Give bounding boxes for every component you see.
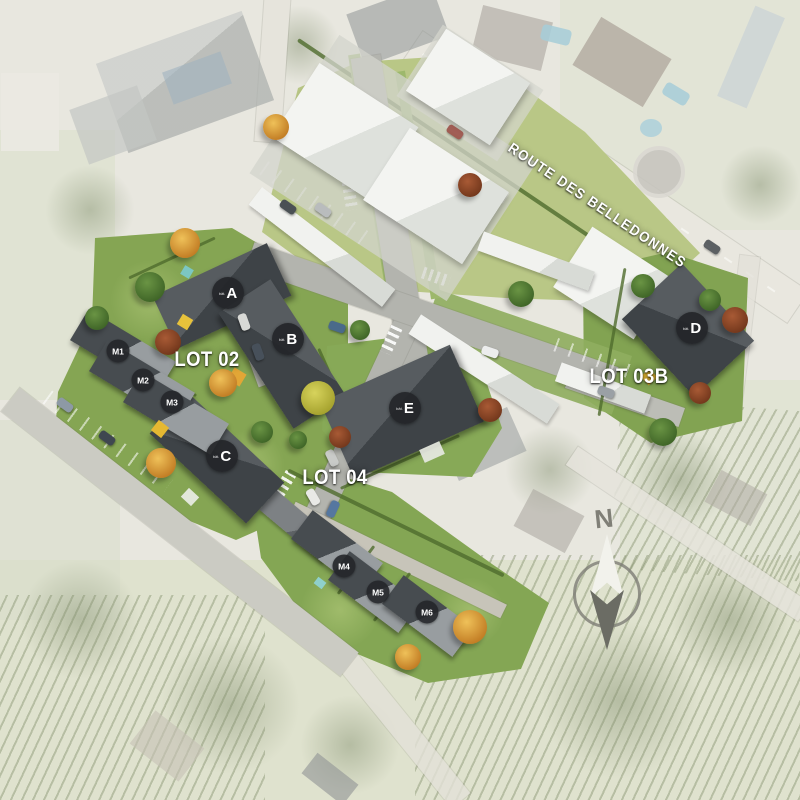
tree bbox=[209, 369, 237, 397]
tree bbox=[85, 306, 109, 330]
tree bbox=[649, 418, 677, 446]
tree bbox=[631, 274, 655, 298]
tree bbox=[699, 289, 721, 311]
tree bbox=[350, 320, 370, 340]
tree bbox=[146, 448, 176, 478]
building-prefix: bât. bbox=[213, 454, 220, 459]
building-prefix: bât. bbox=[396, 406, 403, 411]
building-marker-e: bât. E bbox=[389, 392, 421, 424]
building-marker-d: bât. D bbox=[676, 312, 708, 344]
tree bbox=[453, 610, 487, 644]
north-label: N bbox=[593, 503, 615, 536]
tree-clump bbox=[20, 560, 140, 680]
site-plan-map: ROUTE DES BELLEDONNES LOT 02 LOT 03B LOT… bbox=[0, 0, 800, 800]
building-prefix: bât. bbox=[683, 326, 690, 331]
building-letter: C bbox=[220, 449, 231, 464]
tree bbox=[135, 272, 165, 302]
building-prefix: bât. bbox=[279, 337, 286, 342]
building-letter: E bbox=[404, 401, 414, 416]
tree bbox=[395, 644, 421, 670]
building-letter: D bbox=[690, 321, 701, 336]
building-prefix: bât. bbox=[219, 291, 226, 296]
tree-clump bbox=[720, 145, 800, 225]
lot-label-03b: LOT 03B bbox=[589, 365, 668, 389]
building-letter: A bbox=[226, 286, 237, 301]
tree bbox=[289, 431, 307, 449]
tree bbox=[508, 281, 534, 307]
building-letter: B bbox=[286, 332, 297, 347]
swimming-pool bbox=[640, 119, 662, 137]
house-marker-m3: M3 bbox=[161, 391, 184, 414]
tree bbox=[263, 114, 289, 140]
tree bbox=[170, 228, 200, 258]
tree bbox=[689, 382, 711, 404]
tree bbox=[722, 307, 748, 333]
round-structure bbox=[633, 146, 685, 198]
house-marker-m2: M2 bbox=[132, 369, 155, 392]
building-marker-a: bât. A bbox=[212, 277, 244, 309]
tree bbox=[329, 426, 351, 448]
building-marker-b: bât. B bbox=[272, 323, 304, 355]
house-marker-m5: M5 bbox=[367, 581, 390, 604]
tree bbox=[301, 381, 335, 415]
building-roof bbox=[1, 73, 59, 151]
tree bbox=[251, 421, 273, 443]
tree bbox=[478, 398, 502, 422]
lot-label-02: LOT 02 bbox=[174, 348, 239, 372]
building-marker-c: bât. C bbox=[206, 440, 238, 472]
lot-label-04: LOT 04 bbox=[302, 466, 367, 490]
tree bbox=[458, 173, 482, 197]
house-marker-m6: M6 bbox=[416, 601, 439, 624]
house-marker-m1: M1 bbox=[107, 340, 130, 363]
house-marker-m4: M4 bbox=[333, 555, 356, 578]
